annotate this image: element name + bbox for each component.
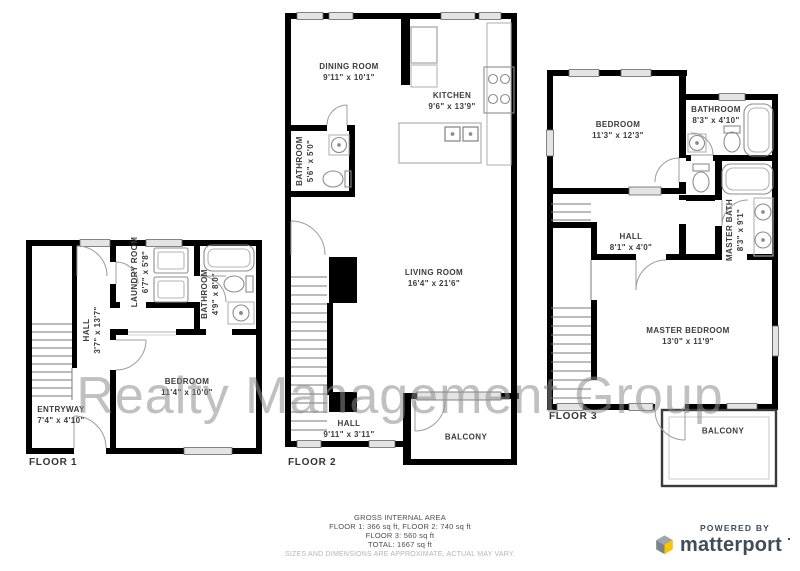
floor1-label: FLOOR 1 xyxy=(29,457,77,468)
powered-by-label: POWERED BY xyxy=(654,523,790,533)
room-label-living-room: LIVING ROOM 16'4" x 21'6" xyxy=(405,268,463,290)
room-label-bathroom-f1: BATHROOM 4'9" x 8'0" xyxy=(200,269,222,319)
room-label-bathroom-f2: BATHROOM 5'6" x 5'0" xyxy=(295,136,317,186)
room-name: HALL xyxy=(323,419,374,430)
room-label-bathroom-f3: BATHROOM 8'3" x 4'10" xyxy=(691,105,741,127)
room-name: BALCONY xyxy=(445,433,487,444)
room-name: MASTER BATH xyxy=(725,199,736,261)
floor2-label: FLOOR 2 xyxy=(288,457,336,468)
room-dims: 8'3" x 4'10" xyxy=(691,116,741,127)
room-dims: 13'0" x 11'9" xyxy=(646,337,729,348)
area-summary-title: GROSS INTERNAL AREA xyxy=(0,513,800,522)
room-dims: 11'4" x 10'0" xyxy=(161,388,213,399)
room-name: HALL xyxy=(82,306,93,353)
room-label-hall-f2: HALL 9'11" x 3'11" xyxy=(323,419,374,441)
room-dims: 9'11" x 10'1" xyxy=(319,73,379,84)
floor3-stairs xyxy=(551,204,591,398)
trademark-dot xyxy=(788,538,790,540)
room-name: BATHROOM xyxy=(295,136,306,186)
room-name: BEDROOM xyxy=(592,120,644,131)
room-label-master-bedroom: MASTER BEDROOM 13'0" x 11'9" xyxy=(646,326,729,348)
room-dims: 11'3" x 12'3" xyxy=(592,131,644,142)
room-label-kitchen: KITCHEN 9'6" x 13'9" xyxy=(428,91,475,113)
room-dims: 6'7" x 5'8" xyxy=(141,237,152,308)
room-label-hall-f1: HALL 3'7" x 13'7" xyxy=(82,306,104,353)
room-label-dining-room: DINING ROOM 9'11" x 10'1" xyxy=(319,62,379,84)
room-label-hall-f3: HALL 8'1" x 4'0" xyxy=(610,232,652,254)
room-label-bedroom-f3: BEDROOM 11'3" x 12'3" xyxy=(592,120,644,142)
room-name: DINING ROOM xyxy=(319,62,379,73)
floor2-stairs xyxy=(291,277,327,430)
room-dims: 5'6" x 5'0" xyxy=(306,136,317,186)
matterport-wordmark: matterport xyxy=(680,535,782,555)
room-name: BEDROOM xyxy=(161,377,213,388)
room-name: HALL xyxy=(610,232,652,243)
room-dims: 9'6" x 13'9" xyxy=(428,102,475,113)
room-name: BATHROOM xyxy=(691,105,741,116)
room-name: KITCHEN xyxy=(428,91,475,102)
room-label-laundry-room: LAUNDRY ROOM 6'7" x 5'8" xyxy=(130,237,152,308)
floor3-label: FLOOR 3 xyxy=(549,411,597,422)
room-name: LIVING ROOM xyxy=(405,268,463,279)
room-name: ENTRYWAY xyxy=(37,405,85,416)
room-label-bedroom-f1: BEDROOM 11'4" x 10'0" xyxy=(161,377,213,399)
room-name: BATHROOM xyxy=(200,269,211,319)
room-label-entryway: ENTRYWAY 7'4" x 4'10" xyxy=(37,405,85,427)
room-label-master-bath: MASTER BATH 8'3" x 9'1" xyxy=(725,199,747,261)
floor3-doors xyxy=(636,133,748,440)
room-dims: 7'4" x 4'10" xyxy=(37,416,85,427)
room-name: MASTER BEDROOM xyxy=(646,326,729,337)
room-label-balcony-f3: BALCONY xyxy=(702,427,744,438)
matterport-cube-icon xyxy=(654,534,675,555)
room-dims: 8'1" x 4'0" xyxy=(610,243,652,254)
room-name: BALCONY xyxy=(702,427,744,438)
floorplan-canvas: ENTRYWAY 7'4" x 4'10" HALL 3'7" x 13'7" … xyxy=(0,0,800,571)
matterport-logo[interactable]: POWERED BY matterport xyxy=(654,523,790,555)
room-dims: 3'7" x 13'7" xyxy=(93,306,104,353)
floor3-plan-drawing xyxy=(541,64,786,494)
room-dims: 8'3" x 9'1" xyxy=(736,199,747,261)
room-dims: 4'9" x 8'0" xyxy=(211,269,222,319)
floor3-balcony-outline xyxy=(662,410,776,486)
room-name: LAUNDRY ROOM xyxy=(130,237,141,308)
floor1-stairs xyxy=(32,324,72,400)
room-label-balcony-f2: BALCONY xyxy=(445,433,487,444)
room-dims: 9'11" x 3'11" xyxy=(323,430,374,441)
room-dims: 16'4" x 21'6" xyxy=(405,279,463,290)
